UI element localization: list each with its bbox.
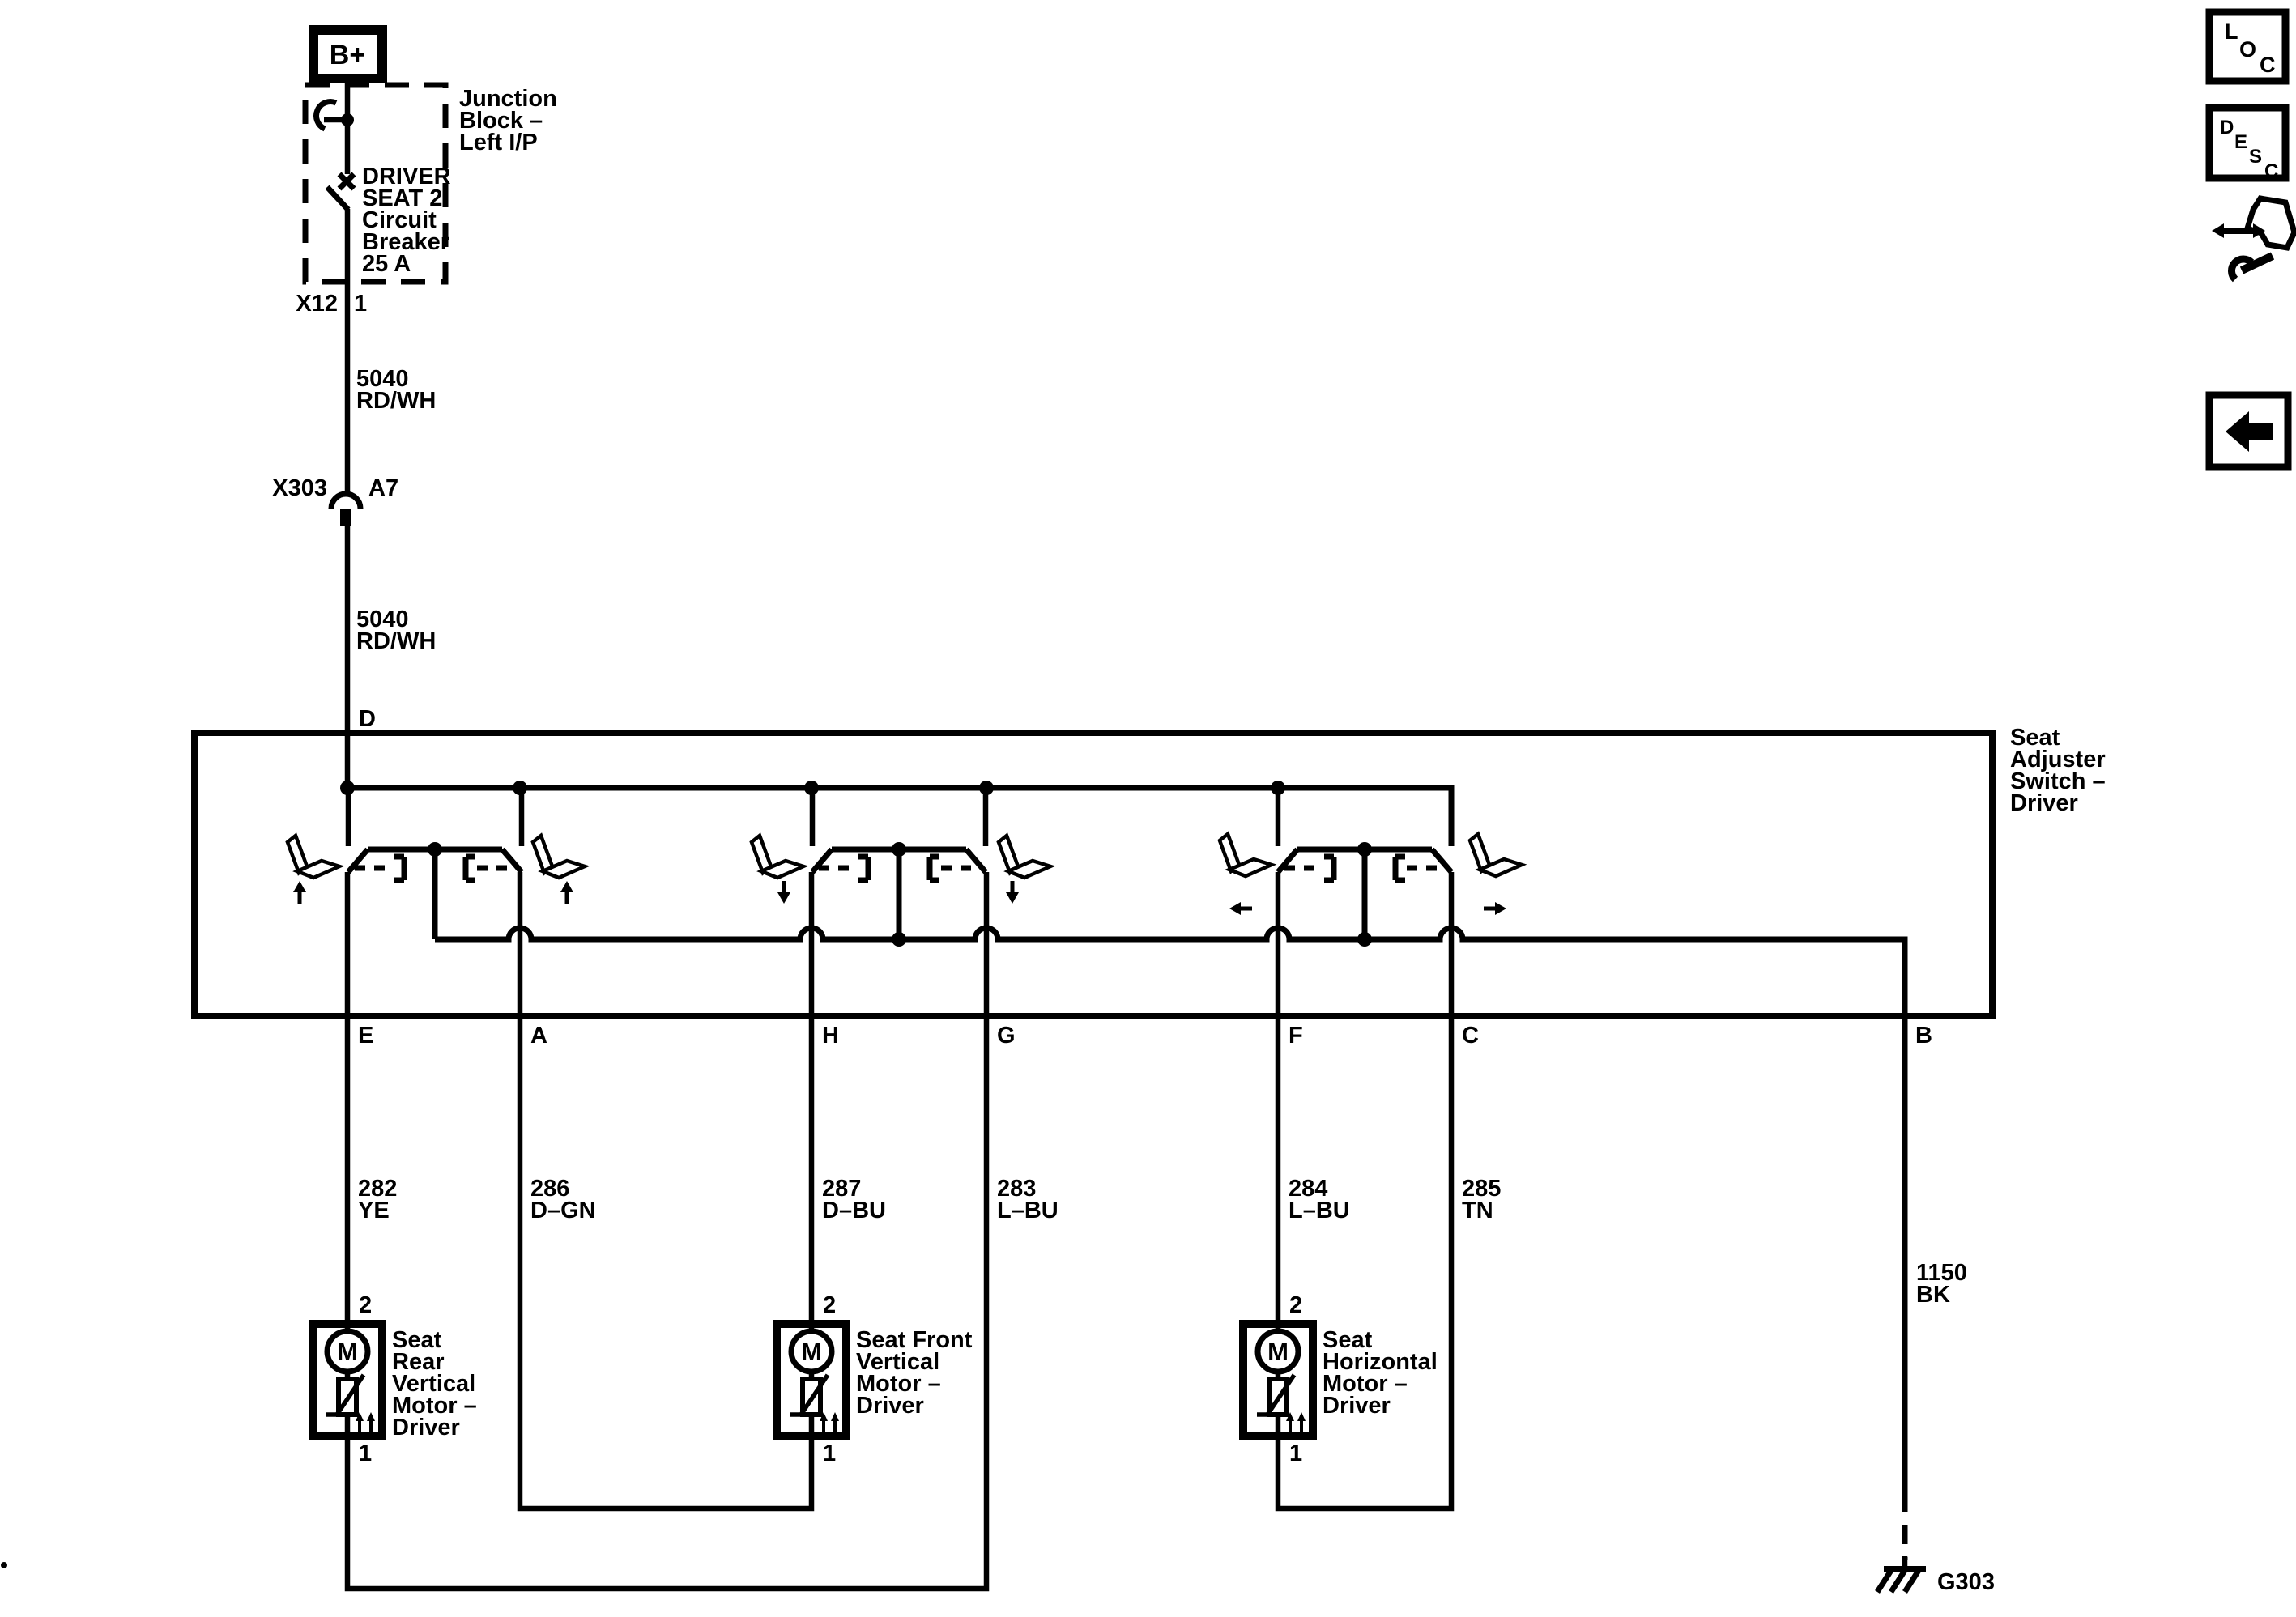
component-outline-icon [2247,198,2294,248]
seat-down-icon [752,836,803,878]
switch-pin-h: H [822,1023,839,1049]
connector-x12-label: X12 [296,291,338,317]
loc-letter: C [2260,53,2276,77]
fuse-clip-icon [317,102,336,129]
wire-label: D–BU [822,1198,886,1223]
motor-m: M [337,1338,358,1366]
connector-pin-icon [340,509,351,526]
connector-x303-label: X303 [272,475,327,501]
seat-up-icon [533,836,585,878]
connector-socket-icon [331,494,360,509]
connector-x303-pin: A7 [368,475,398,501]
motor-label: Driver [856,1393,924,1419]
junction-block: Junction Block – Left I/P DRIVER SEAT 2 … [296,85,556,494]
ground-label: G303 [1937,1569,1995,1595]
right-arrow-icon [1484,902,1506,915]
rocker-rear-vertical[interactable] [348,788,522,939]
seat-adjuster-switch: D Seat Adjuster Switch – Driver [194,706,2106,1492]
ground-tooth-icon [1905,1569,1919,1592]
seat-rear-vertical-motor: 2 M 1 Seat Rear Vertical Motor – Driver [313,1292,477,1466]
wire-5040-color: RD/WH [356,628,436,654]
switch-pin-c: C [1462,1023,1479,1049]
motor-m: M [801,1338,822,1366]
connector-x12-pin: 1 [354,291,367,317]
rocker-front-vertical[interactable] [812,788,986,939]
motor-pin-2: 2 [823,1292,836,1318]
wire-5040-color: RD/WH [356,388,436,414]
back-button[interactable] [2209,395,2288,467]
b-plus-label: B+ [330,40,365,70]
seat-horizontal-motor: 2 M 1 Seat Horizontal Motor – Driver [1243,1292,1438,1466]
harness-wires [347,872,1905,1589]
down-arrow-icon [1006,881,1019,904]
seat-front-vertical-motor: 2 M 1 Seat Front Vertical Motor – Driver [777,1292,973,1466]
switch-pin-g: G [997,1023,1016,1049]
wire-label: YE [358,1198,390,1223]
motor-pin-1: 1 [359,1440,372,1466]
junction-dot [341,113,354,126]
desc-letter: S [2249,146,2262,168]
desc-button[interactable]: D E S C [2209,108,2285,182]
seat-up-icon [288,836,339,878]
desc-letter: E [2234,131,2247,153]
wire-283-lbu [347,872,986,1589]
switch-label: Driver [2010,790,2078,816]
loc-letter: O [2239,37,2256,62]
wiring-diagram-page: B+ Junction Block – Left I/P DRIVER SEAT… [0,0,2296,1617]
wire-label: D–GN [530,1198,596,1223]
ground-g303: G303 [1877,1556,1995,1595]
wire-label: L–BU [1289,1198,1350,1223]
motor-pin-2: 2 [359,1292,372,1318]
common-bus [435,928,1905,1492]
up-arrow-icon [560,881,573,904]
seat-forward-icon [1470,834,1522,876]
motor-label: Driver [392,1415,460,1440]
motor-m: M [1267,1338,1289,1366]
ground-tooth-icon [1877,1569,1892,1592]
junction-block-label: Left I/P [459,130,538,155]
wire-label: L–BU [997,1198,1059,1223]
down-arrow-icon [777,881,790,904]
switch-pin-f: F [1289,1023,1303,1049]
switch-pin-a: A [530,1023,547,1049]
motor-pin-1: 1 [823,1440,836,1466]
wire-label: BK [1916,1282,1950,1308]
up-arrow-icon [293,881,306,904]
motor-pin-1: 1 [1289,1440,1302,1466]
switch-pin-e: E [358,1023,373,1049]
wire-labels: 282 YE 286 D–GN 287 D–BU 283 L–BU 284 L–… [358,1176,1967,1308]
page-speck [1,1562,7,1568]
feed-bus [347,788,1451,846]
seat-back-icon [1220,834,1272,876]
wire-label: TN [1462,1198,1493,1223]
seat-adjuster-wiring-diagram: B+ Junction Block – Left I/P DRIVER SEAT… [0,0,2296,1617]
desc-letter: C [2264,160,2278,182]
loc-letter: L [2225,19,2238,44]
ground-tooth-icon [1891,1569,1906,1592]
rocker-horizontal[interactable] [1278,788,1451,939]
motor-pin-2: 2 [1289,1292,1302,1318]
loc-button[interactable]: L O C [2209,12,2285,81]
switch-pin-d: D [359,706,376,732]
desc-letter: D [2220,117,2234,138]
breaker-label: 25 A [362,251,411,277]
motor-label: Driver [1323,1393,1391,1419]
left-arrow-icon [1229,902,1252,915]
connector-view-button[interactable] [2212,198,2294,279]
seat-down-icon [999,836,1050,878]
switch-pin-b: B [1915,1023,1932,1049]
circuit-breaker-icon [327,174,354,210]
